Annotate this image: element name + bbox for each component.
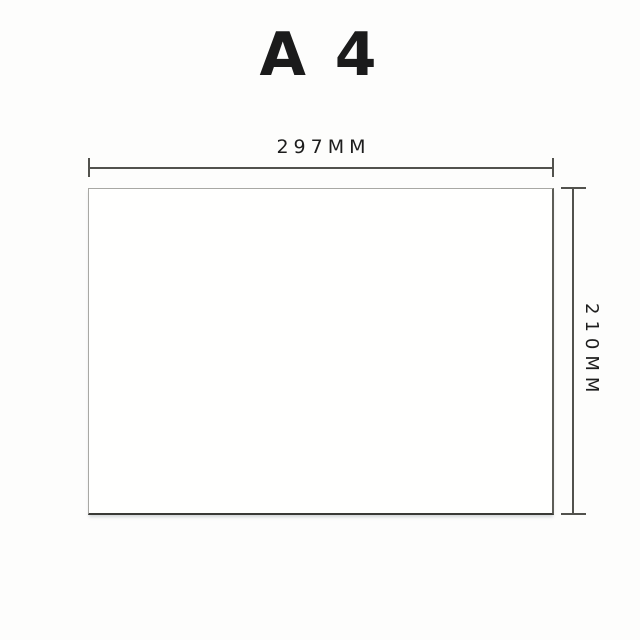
width-dimension-end-tick-right: [552, 158, 554, 177]
height-dimension-line: [572, 187, 574, 515]
diagram-title: A 4: [0, 22, 640, 88]
a4-paper-size-diagram: A 4 297MM 210MM: [0, 0, 640, 640]
width-dimension-end-tick-left: [88, 158, 90, 177]
height-dimension-label: 210MM: [581, 187, 602, 515]
width-dimension-line: [88, 167, 554, 169]
width-dimension-label: 297MM: [88, 136, 554, 158]
paper-rectangle: [88, 188, 554, 515]
